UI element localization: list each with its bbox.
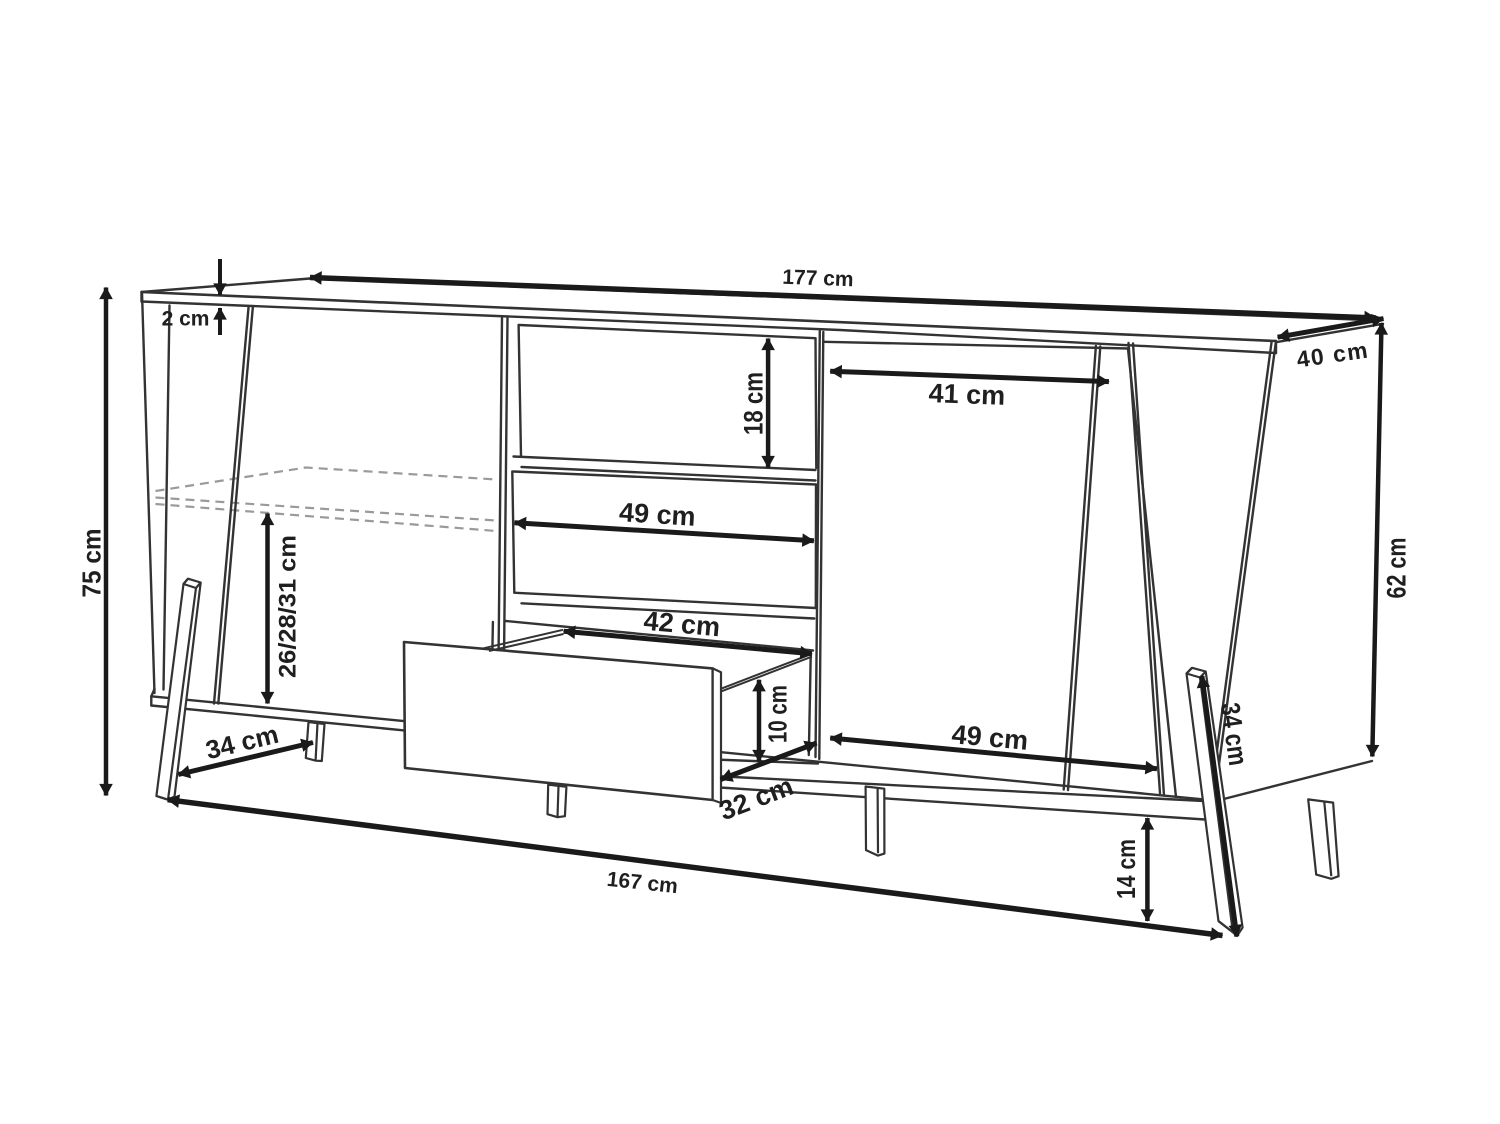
- svg-text:10 cm: 10 cm: [763, 685, 793, 743]
- svg-text:26/28/31 cm: 26/28/31 cm: [274, 535, 301, 678]
- svg-text:75 cm: 75 cm: [76, 529, 106, 598]
- svg-text:14 cm: 14 cm: [1111, 839, 1141, 899]
- svg-text:62 cm: 62 cm: [1382, 538, 1412, 599]
- svg-text:49 cm: 49 cm: [618, 497, 696, 532]
- svg-text:18 cm: 18 cm: [739, 372, 769, 435]
- svg-text:41 cm: 41 cm: [928, 378, 1006, 411]
- svg-text:177 cm: 177 cm: [782, 266, 854, 291]
- svg-text:2 cm: 2 cm: [162, 308, 210, 331]
